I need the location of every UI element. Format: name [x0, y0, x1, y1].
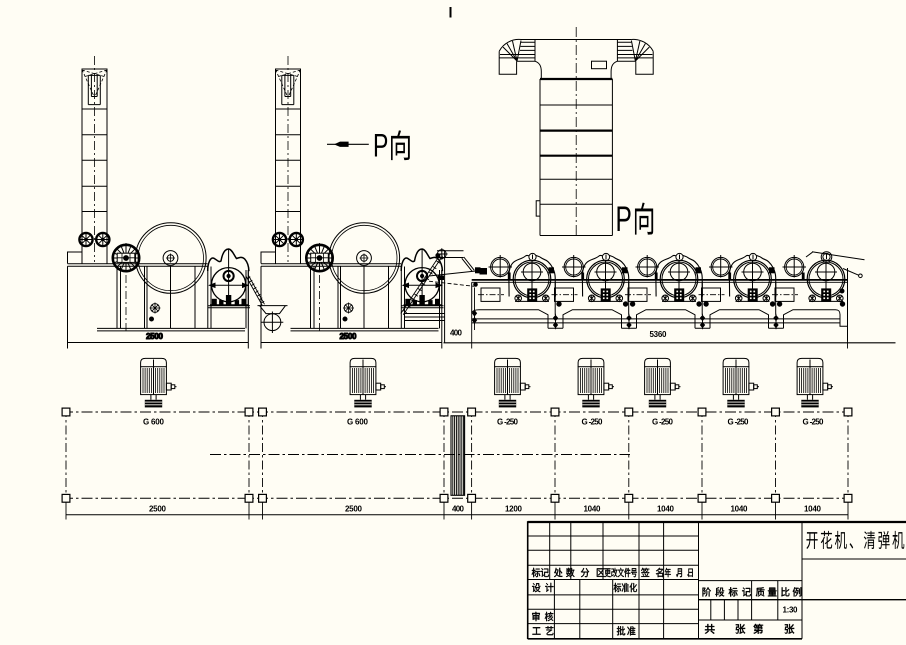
svg-text:G 600: G 600	[347, 418, 369, 427]
svg-text:G -250: G -250	[582, 418, 604, 427]
svg-text:1200: 1200	[505, 505, 523, 514]
svg-text:1040: 1040	[657, 505, 675, 514]
svg-text:G -250: G -250	[728, 418, 750, 427]
svg-text:400: 400	[450, 329, 463, 338]
svg-text:1:30: 1:30	[783, 606, 799, 615]
svg-text:2500: 2500	[345, 505, 363, 514]
svg-text:P: P	[373, 128, 388, 164]
svg-text:G 600: G 600	[143, 418, 165, 427]
svg-text:1040: 1040	[584, 505, 602, 514]
svg-text:400: 400	[452, 505, 465, 514]
svg-text:1040: 1040	[731, 505, 749, 514]
svg-text:1040: 1040	[804, 505, 822, 514]
svg-text:G -250: G -250	[497, 418, 519, 427]
svg-text:2500: 2500	[149, 505, 167, 514]
svg-text:G -250: G -250	[652, 418, 674, 427]
svg-text:P: P	[616, 201, 632, 239]
svg-text:5360: 5360	[650, 330, 668, 339]
svg-text:G -250: G -250	[803, 418, 825, 427]
